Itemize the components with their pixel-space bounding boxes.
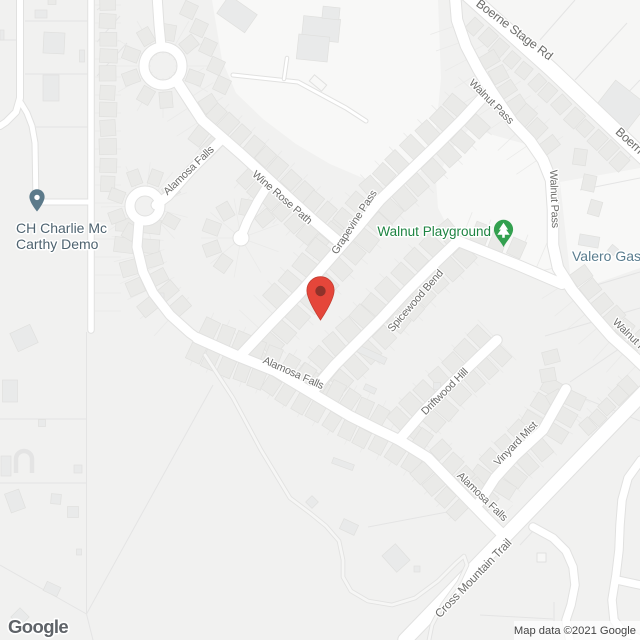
svg-text:Walnut Pass: Walnut Pass [547, 170, 561, 229]
svg-text:Map data ©2021 Google: Map data ©2021 Google [514, 625, 636, 637]
svg-text:Carthy Demo: Carthy Demo [16, 236, 99, 252]
svg-text:Valero Gas: Valero Gas [572, 248, 640, 264]
svg-text:CH Charlie Mc: CH Charlie Mc [16, 220, 107, 236]
svg-text:Walnut Playground: Walnut Playground [377, 224, 491, 239]
svg-text:Google: Google [8, 616, 68, 637]
